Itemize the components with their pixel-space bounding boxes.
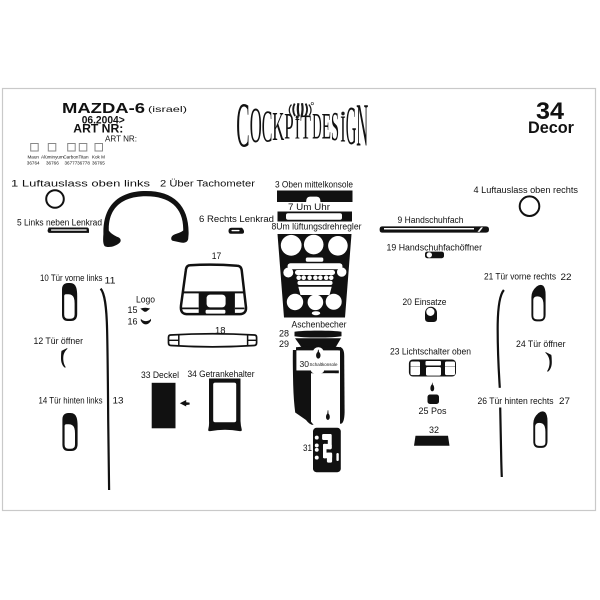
svg-text:34 Getrankehalter: 34 Getrankehalter (188, 369, 256, 380)
svg-text:G: G (346, 95, 357, 156)
svg-text:ART NR:: ART NR: (105, 135, 137, 144)
svg-text:7 Um Uhr: 7 Um Uhr (288, 202, 331, 213)
svg-text:13: 13 (113, 396, 124, 407)
svg-text:10 Tür vorne links: 10 Tür vorne links (40, 273, 103, 284)
svg-text:C: C (262, 101, 273, 151)
svg-text:C: C (236, 91, 249, 161)
svg-text:1 Luftauslass oben links: 1 Luftauslass oben links (11, 179, 150, 190)
svg-text:E: E (322, 107, 331, 148)
svg-text:S: S (331, 103, 339, 149)
svg-text:36765: 36765 (92, 161, 105, 166)
svg-text:Aschenbecher: Aschenbecher (292, 320, 348, 331)
svg-text:K: K (272, 103, 284, 149)
svg-text:36777: 36777 (65, 161, 78, 166)
svg-text:11: 11 (105, 276, 116, 287)
svg-text:Carbon: Carbon (63, 155, 79, 160)
svg-text:Schaltkonsole: Schaltkonsole (310, 362, 338, 367)
svg-text:36778: 36778 (77, 161, 90, 166)
svg-text:3 Oben mittelkonsole: 3 Oben mittelkonsole (275, 180, 353, 191)
svg-text:O: O (250, 99, 262, 155)
svg-text:15: 15 (128, 305, 138, 316)
svg-text:22: 22 (561, 272, 572, 283)
svg-text:16: 16 (128, 317, 138, 328)
svg-text:6 Rechts Lenkrad: 6 Rechts Lenkrad (199, 214, 274, 225)
svg-text:4 Luftauslass oben rechts: 4 Luftauslass oben rechts (474, 185, 579, 196)
svg-text:8Um lüftungsdrehregler: 8Um lüftungsdrehregler (272, 222, 363, 233)
svg-text:33 Deckel: 33 Deckel (141, 370, 179, 381)
svg-text:24 Tür öffner: 24 Tür öffner (516, 339, 566, 350)
svg-text:29: 29 (279, 339, 289, 350)
svg-text:30: 30 (300, 359, 310, 369)
svg-text:32: 32 (429, 425, 439, 436)
svg-text:27: 27 (559, 396, 570, 407)
svg-text:Logo: Logo (136, 295, 155, 306)
svg-text:17: 17 (212, 251, 222, 262)
svg-text:9 Handschuhfach: 9 Handschuhfach (398, 215, 464, 226)
svg-text:5 Links neben Lenkrad: 5 Links neben Lenkrad (17, 218, 102, 229)
svg-text:D: D (312, 107, 321, 148)
svg-text:31: 31 (303, 443, 312, 454)
svg-text:(israel): (israel) (148, 104, 187, 114)
svg-text:N: N (356, 92, 368, 159)
svg-text:23 Lichtschalter oben: 23 Lichtschalter oben (390, 347, 471, 358)
svg-text:2 Über Tachometer: 2 Über Tachometer (160, 179, 256, 190)
svg-text:20 Einsatze: 20 Einsatze (403, 297, 447, 308)
svg-text:Kok M: Kok M (92, 155, 105, 160)
svg-text:14 Tür hinten links: 14 Tür hinten links (39, 396, 103, 407)
svg-text:26 Tür hinten rechts: 26 Tür hinten rechts (478, 396, 554, 407)
svg-text:21 Tür vorne rechts: 21 Tür vorne rechts (484, 272, 556, 283)
svg-text:Titan: Titan (78, 155, 88, 160)
svg-text:Maun: Maun (27, 155, 39, 160)
svg-text:28: 28 (279, 329, 289, 340)
svg-text:25 Pos: 25 Pos (419, 406, 447, 417)
svg-text:Alüminyum: Alüminyum (41, 155, 64, 160)
svg-text:ART NR:: ART NR: (73, 123, 123, 135)
svg-text:12 Tür öffner: 12 Tür öffner (34, 336, 84, 347)
svg-text:36764: 36764 (27, 161, 40, 166)
svg-text:36766: 36766 (46, 161, 59, 166)
svg-text:Decor: Decor (528, 118, 574, 137)
